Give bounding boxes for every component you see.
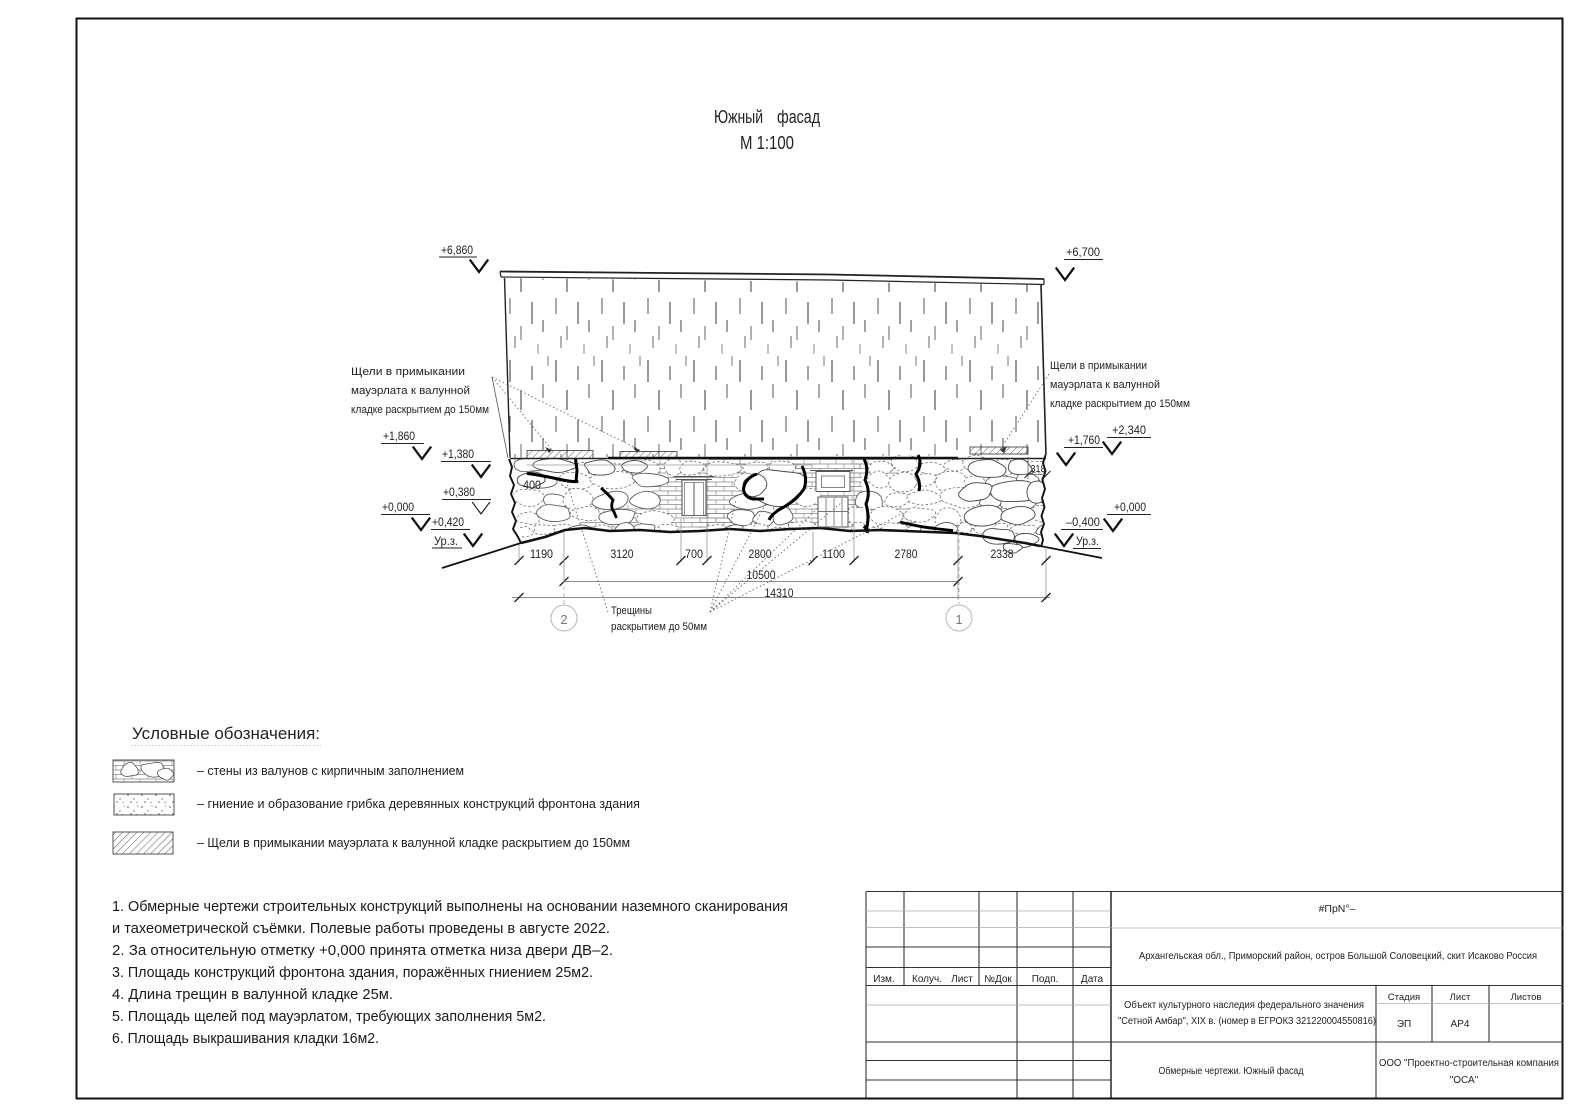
svg-text:Ур.з.: Ур.з. [1076,536,1099,548]
svg-text:Архангельская обл., Приморский: Архангельская обл., Приморский район, ос… [1139,950,1537,962]
svg-text:6. Площадь выкрашивания кладки: 6. Площадь выкрашивания кладки 16м2. [112,1031,379,1047]
svg-text:Лист: Лист [1450,992,1471,1003]
svg-text:Щели в примыкании: Щели в примыкании [351,366,465,378]
svg-text:Дата: Дата [1081,974,1104,985]
svg-text:+0,380: +0,380 [443,487,475,499]
svg-text:Щели в примыкании: Щели в примыкании [1050,360,1147,372]
svg-text:+0,000: +0,000 [1114,502,1146,514]
svg-text:+6,860: +6,860 [441,245,473,257]
svg-text:фасад: фасад [777,106,820,127]
svg-text:кладке раскрытием до 150мм: кладке раскрытием до 150мм [1050,398,1190,410]
svg-text:2780: 2780 [895,549,918,561]
svg-text:кладке раскрытием до 150мм: кладке раскрытием до 150мм [351,404,489,416]
svg-text:318: 318 [1031,463,1046,475]
svg-text:1. Обмерные чертежи строитель: 1. Обмерные чертежи строительных констру… [112,899,788,915]
svg-text:5. Площадь щелей под мауэрлато: 5. Площадь щелей под мауэрлатом, требующ… [112,1009,546,1025]
svg-text:Лист: Лист [951,974,973,985]
svg-text:Изм.: Изм. [873,974,894,985]
svg-text:Трещины: Трещины [611,605,652,617]
svg-text:Объект культурного наследия фе: Объект культурного наследия федерального… [1124,999,1364,1011]
svg-text:– стены из валунов с кирпичным: – стены из валунов с кирпичным заполнени… [197,764,464,778]
svg-text:Обмерные чертежи. Южный фасад: Обмерные чертежи. Южный фасад [1159,1065,1304,1077]
svg-text:Стадия: Стадия [1388,992,1420,1003]
svg-text:Южный: Южный [714,106,763,127]
svg-text:700: 700 [685,549,703,561]
svg-text:1190: 1190 [530,549,553,561]
svg-text:М 1:100: М 1:100 [740,132,794,153]
svg-text:1100: 1100 [822,549,845,561]
svg-text:и тахеометрической съёмки. Пол: и тахеометрической съёмки. Полевые работ… [112,921,610,937]
svg-text:№Док: №Док [984,974,1012,985]
svg-text:ЭП: ЭП [1397,1019,1411,1030]
svg-text:+6,700: +6,700 [1066,247,1100,259]
svg-text:"Сетной Амбар", XIX в. (номер: "Сетной Амбар", XIX в. (номер в ЕГРОКЗ 3… [1118,1015,1376,1027]
svg-text:+0,420: +0,420 [432,517,464,529]
svg-text:ООО "Проектно-строительная ко: ООО "Проектно-строительная компания [1379,1058,1559,1069]
svg-text:Колуч.: Колуч. [912,974,942,985]
svg-text:– Щели в примыкании мауэрлата: – Щели в примыкании мауэрлата к валунной… [197,836,630,850]
svg-text:+1,760: +1,760 [1068,435,1100,447]
svg-text:Условные обозначения:: Условные обозначения: [132,724,320,743]
svg-text:400: 400 [523,480,541,492]
svg-text:2338: 2338 [991,549,1014,561]
svg-text:мауэрлата к валунной: мауэрлата к валунной [351,385,470,397]
svg-text:+1,860: +1,860 [383,431,415,443]
svg-text:АР4: АР4 [1451,1019,1470,1030]
svg-text:3120: 3120 [611,549,634,561]
svg-text:Подп.: Подп. [1032,974,1059,985]
svg-text:#ПрN°–: #ПрN°– [1319,903,1356,915]
svg-text:2. За относительную отметку +0: 2. За относительную отметку +0,000 приня… [112,943,613,959]
svg-text:+0,000: +0,000 [382,502,414,514]
svg-text:"ОСА": "ОСА" [1450,1075,1479,1086]
svg-text:2800: 2800 [749,549,772,561]
svg-text:–0,400: –0,400 [1066,517,1100,529]
svg-text:Ур.з.: Ур.з. [434,536,458,548]
svg-text:раскрытием до 50мм: раскрытием до 50мм [611,621,707,633]
svg-text:мауэрлата к валунной: мауэрлата к валунной [1050,379,1160,391]
svg-text:2: 2 [560,612,567,627]
svg-text:3. Площадь конструкций фронтон: 3. Площадь конструкций фронтона здания, … [112,965,593,981]
svg-text:+2,340: +2,340 [1112,425,1146,437]
svg-text:+1,380: +1,380 [442,449,474,461]
svg-text:Листов: Листов [1511,992,1542,1003]
svg-text:4. Длина трещин в валунной кла: 4. Длина трещин в валунной кладке 25м. [112,987,393,1003]
svg-text:– гниение и образование грибка: – гниение и образование грибка деревянны… [197,797,640,811]
svg-text:14310: 14310 [765,588,794,600]
svg-text:1: 1 [955,612,962,627]
